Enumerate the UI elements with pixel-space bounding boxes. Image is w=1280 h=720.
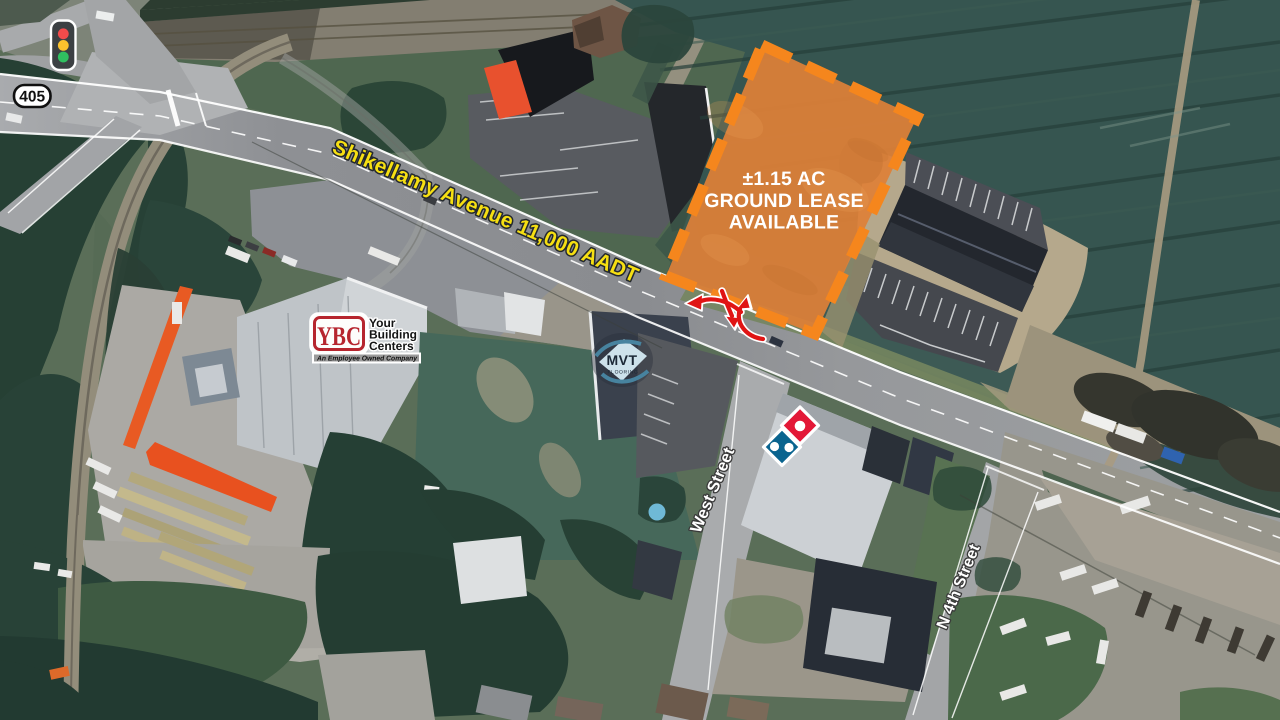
svg-text:Centers: Centers [369, 339, 414, 353]
svg-text:GROUND LEASE: GROUND LEASE [704, 190, 864, 212]
svg-text:AVAILABLE: AVAILABLE [729, 212, 840, 234]
svg-text:An Employee Owned Company: An Employee Owned Company [316, 355, 418, 363]
svg-text:405: 405 [19, 89, 45, 106]
svg-text:MVT: MVT [606, 352, 637, 368]
svg-text:FLOORING: FLOORING [608, 370, 639, 376]
svg-text:YBC: YBC [317, 321, 361, 351]
svg-text:±1.15 AC: ±1.15 AC [742, 168, 825, 190]
